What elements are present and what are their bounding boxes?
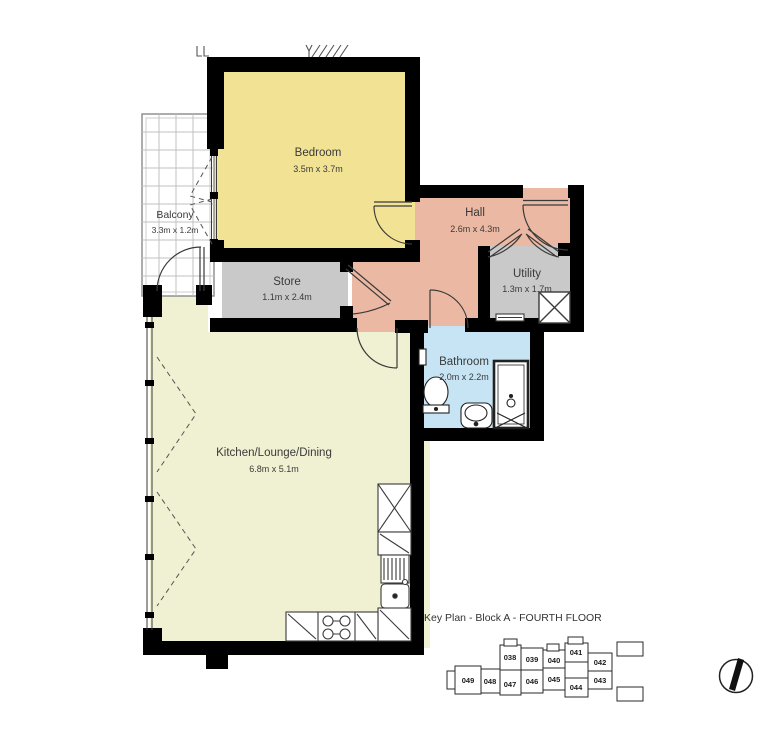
hall-label: Hall xyxy=(465,207,485,219)
wall-segment xyxy=(478,246,490,332)
unit-number: 040 xyxy=(548,656,561,665)
window-mullion xyxy=(145,554,154,560)
wall-segment xyxy=(410,322,424,655)
bedroom-label: Bedroom xyxy=(295,147,342,159)
corner-bracket xyxy=(197,46,209,56)
toilet-flush xyxy=(435,408,438,411)
window-mullion xyxy=(145,322,154,328)
key-plan-bump xyxy=(547,644,559,651)
kitchen-dims: 6.8m x 5.1m xyxy=(249,464,299,474)
key-plan: Key Plan - Block A - FOURTH FLOOR 038 03… xyxy=(424,612,643,701)
window-mullion xyxy=(145,438,154,444)
wall-segment xyxy=(207,57,419,72)
wall-segment xyxy=(210,318,357,332)
window-mullion xyxy=(145,496,154,502)
wall-segment xyxy=(340,306,353,318)
bathroom-dims: 2.0m x 2.2m xyxy=(439,372,489,382)
balcony-dims: 3.3m x 1.2m xyxy=(152,225,199,235)
utility-label: Utility xyxy=(513,268,541,280)
wall-segment xyxy=(143,628,162,655)
wall-segment xyxy=(143,285,162,317)
unit-number: 041 xyxy=(570,648,583,657)
site-marks xyxy=(197,45,348,57)
wall-segment xyxy=(143,641,424,655)
bedroom-fill xyxy=(213,62,415,256)
window-mullion xyxy=(210,149,218,156)
unit-number: 046 xyxy=(526,677,539,686)
unit-number: 042 xyxy=(594,658,607,667)
unit-number: 044 xyxy=(570,683,583,692)
store-fill xyxy=(222,256,348,326)
window-mullion xyxy=(210,192,218,199)
wall-segment xyxy=(207,57,224,149)
unit-number: 038 xyxy=(504,653,517,662)
balcony-label: Balcony xyxy=(156,209,194,221)
wall-segment xyxy=(530,318,544,441)
shower-head-dot xyxy=(510,395,513,398)
wall-segment xyxy=(210,248,420,262)
unit-number: 043 xyxy=(594,676,607,685)
north-arrow-icon xyxy=(720,658,753,693)
key-plan-bump xyxy=(504,639,517,646)
sink-tap xyxy=(403,580,408,585)
key-plan-unit-block xyxy=(447,671,455,689)
kitchen-label: Kitchen/Lounge/Dining xyxy=(216,447,332,459)
north-arrow-needle xyxy=(729,658,744,691)
shower-head xyxy=(507,399,515,407)
basin-drain xyxy=(474,422,478,426)
window-mullion xyxy=(145,612,154,618)
floor-plan-page: Bedroom 3.5m x 3.7m Balcony 3.3m x 1.2m … xyxy=(0,0,770,729)
wall-segment xyxy=(410,428,544,441)
store-dims: 1.1m x 2.4m xyxy=(262,292,312,302)
bathroom-label: Bathroom xyxy=(439,356,489,368)
unit-number: 048 xyxy=(484,677,497,686)
sink-drainer xyxy=(381,555,409,583)
key-plan-balcony-block xyxy=(617,642,643,656)
bathroom-radiator xyxy=(419,349,426,365)
unit-number: 039 xyxy=(526,655,539,664)
hatch-marks xyxy=(306,45,348,57)
unit-number: 047 xyxy=(504,680,517,689)
unit-number: 049 xyxy=(462,676,475,685)
unit-number: 045 xyxy=(548,675,561,684)
wall-segment xyxy=(405,57,420,202)
key-plan-building xyxy=(447,637,643,701)
bedroom-dims: 3.5m x 3.7m xyxy=(293,164,343,174)
key-plan-balcony-block xyxy=(617,687,643,701)
basin-bowl xyxy=(465,405,487,421)
wall-segment xyxy=(206,655,228,669)
balcony-outline xyxy=(142,114,214,296)
sink-drain-dot xyxy=(393,594,397,598)
store-label: Store xyxy=(273,276,301,288)
wall-segment xyxy=(405,185,523,198)
balcony xyxy=(142,114,214,296)
window-mullion xyxy=(145,380,154,386)
hall-dims: 2.6m x 4.3m xyxy=(450,224,500,234)
utility-dims: 1.3m x 1.7m xyxy=(502,284,552,294)
key-plan-title: Key Plan - Block A - FOURTH FLOOR xyxy=(424,612,602,624)
wall-segment xyxy=(570,185,584,332)
key-plan-bump xyxy=(568,637,583,644)
floor-plan-drawing: Bedroom 3.5m x 3.7m Balcony 3.3m x 1.2m … xyxy=(0,0,770,729)
